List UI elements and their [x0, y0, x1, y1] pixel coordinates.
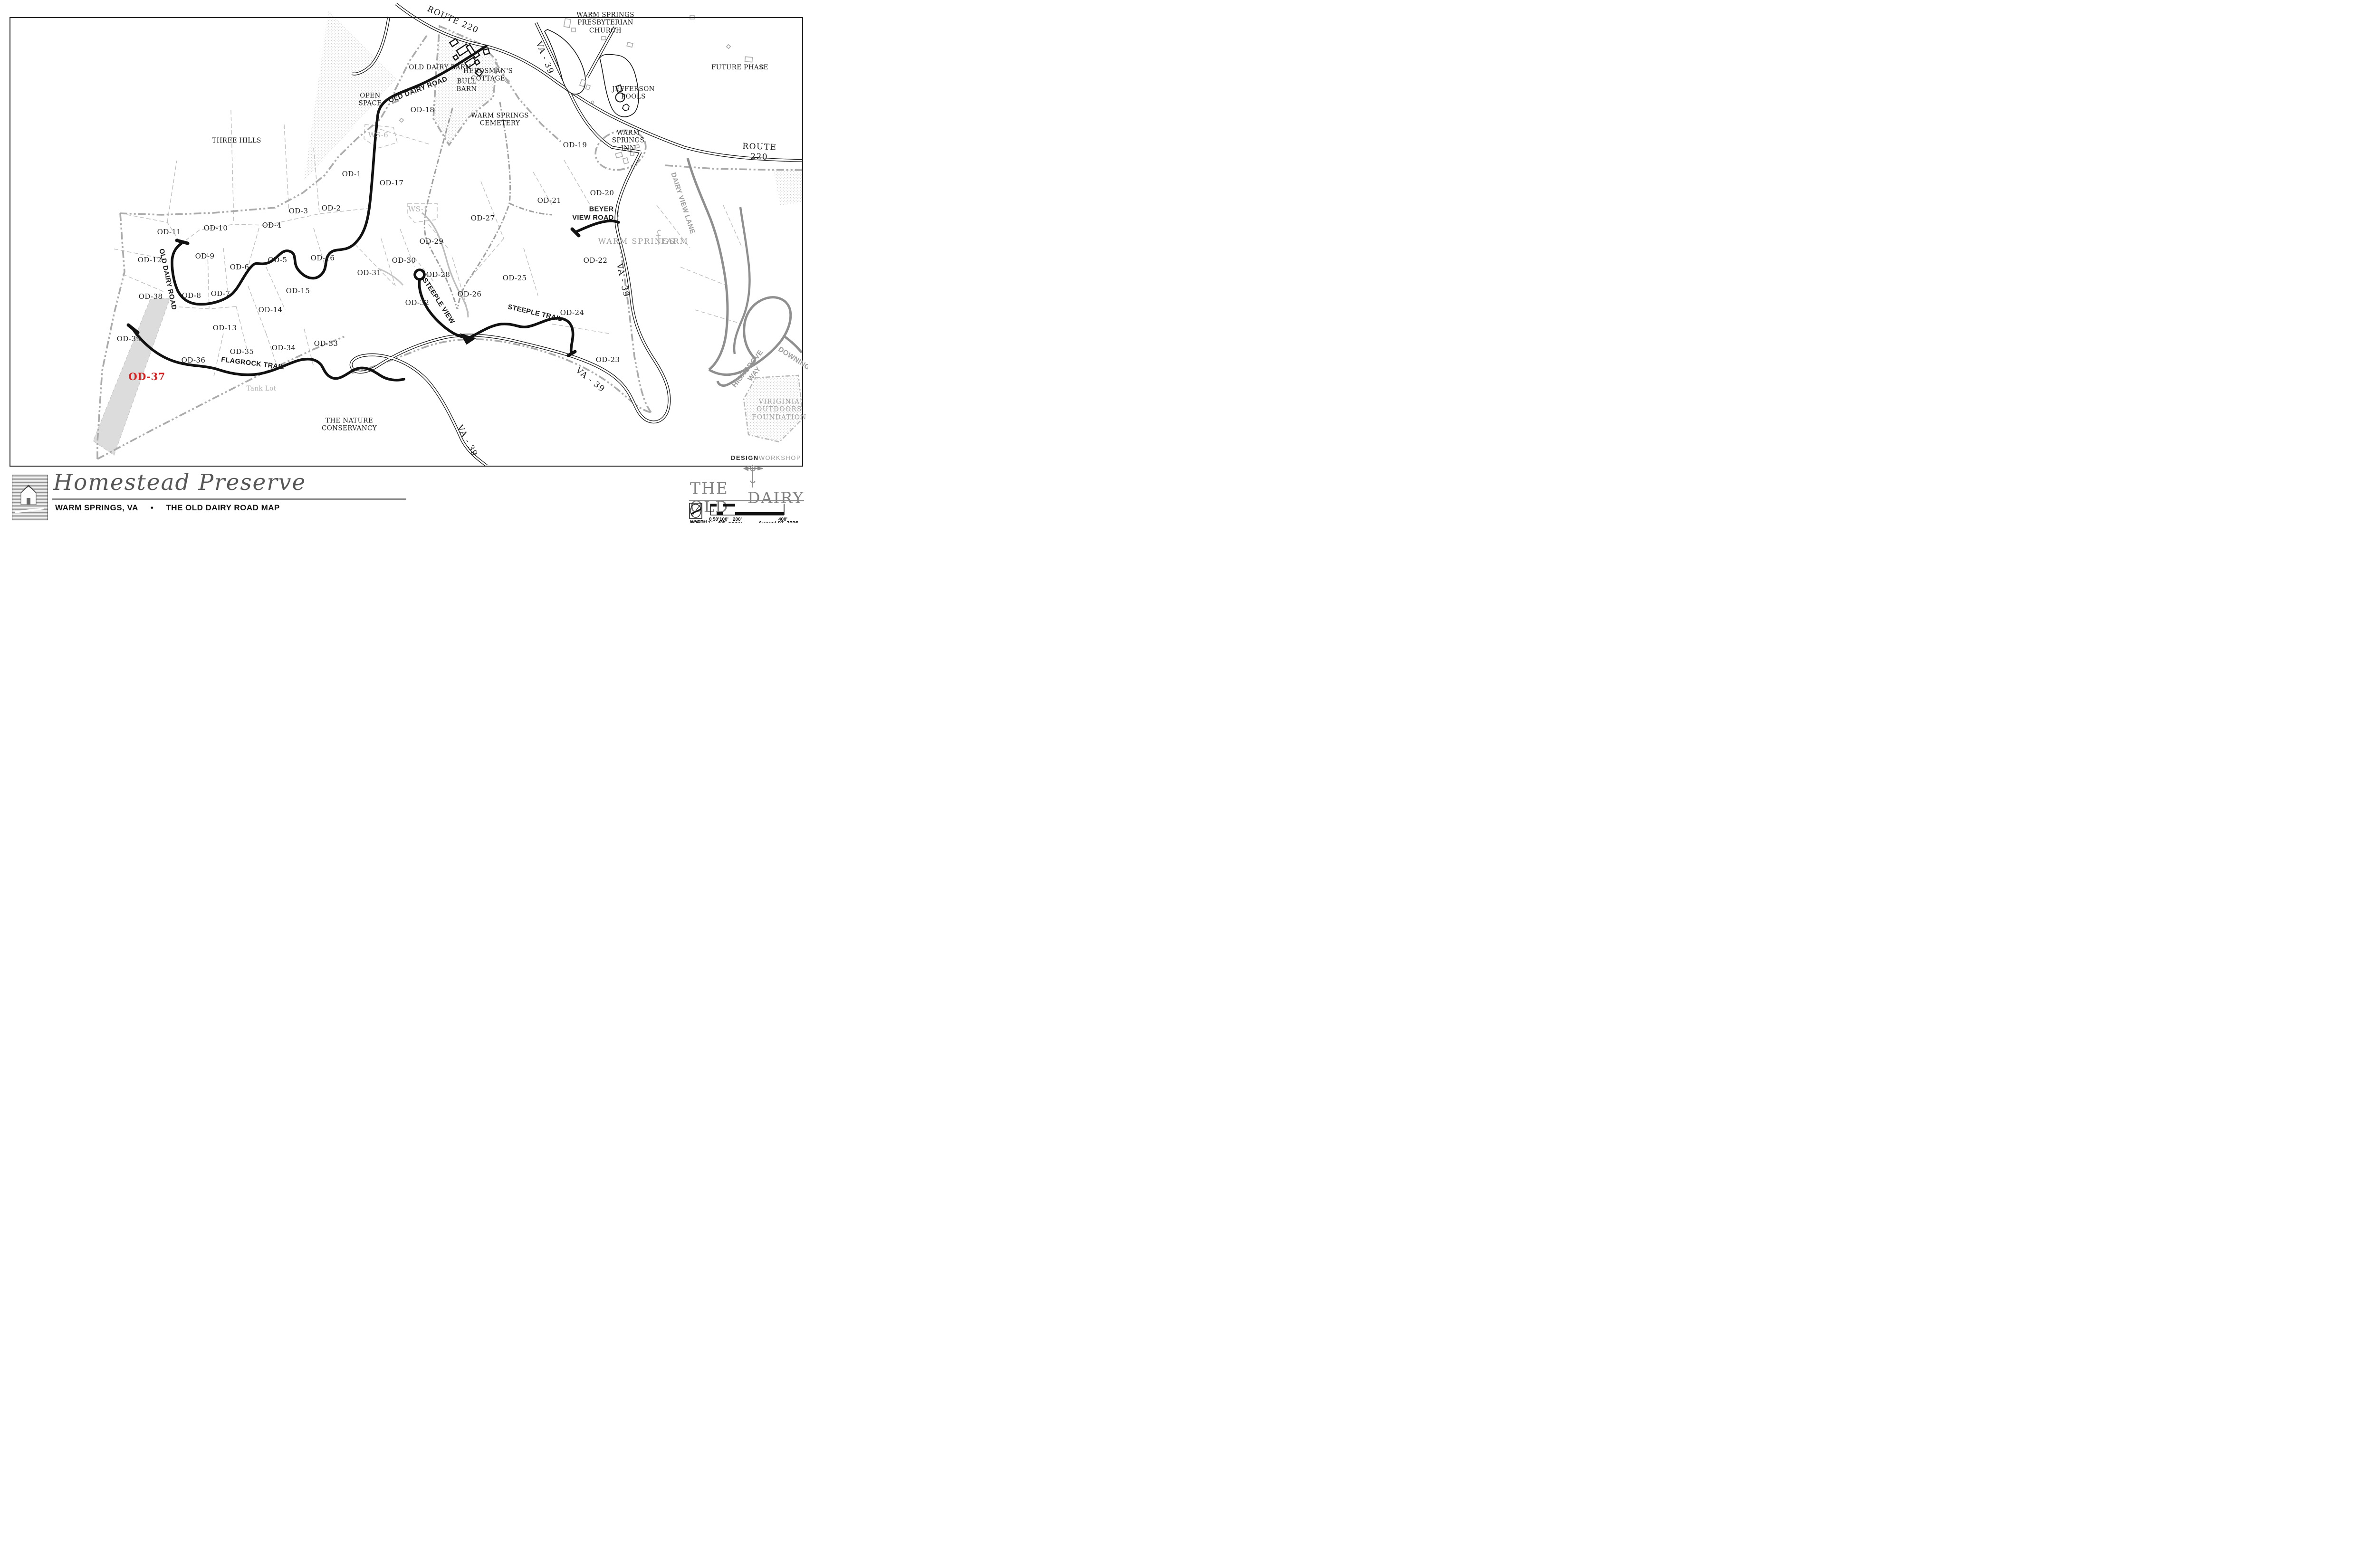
title-rule-right — [689, 500, 804, 501]
parcel-od-5: OD-5 — [268, 256, 287, 264]
parcel-od-32: OD-32 — [405, 298, 430, 307]
parcel-od-21: OD-21 — [537, 196, 562, 205]
scale-bar — [710, 504, 784, 515]
warm-springs-inn-label: WARM SPRINGS INN — [612, 129, 644, 152]
parcel-od-36: OD-36 — [182, 356, 206, 364]
nature-conservancy-label: THE NATURE CONSERVANCY — [322, 417, 377, 433]
design-workshop-credit: DESIGNWORKSHOP — [731, 454, 801, 462]
route-220-label-east: ROUTE 220 — [735, 141, 784, 163]
warm-springs-cemetery-label: WARM SPRINGS CEMETERY — [471, 112, 529, 128]
parcel-od-13: OD-13 — [213, 324, 237, 332]
parcel-od-27: OD-27 — [471, 214, 495, 222]
parcel-od-24: OD-24 — [560, 308, 584, 317]
parcel-od-37: OD-37 — [128, 371, 165, 383]
parcel-od-9: OD-9 — [195, 252, 215, 260]
future-phase-label: FUTURE PHASE — [711, 64, 768, 71]
credit-light: WORKSHOP — [759, 454, 801, 461]
parcel-od-2: OD-2 — [322, 204, 341, 212]
legend-graphics — [689, 503, 805, 522]
project-title: Homestead Preserve — [53, 469, 306, 496]
three-hills-label: THREE HILLS — [212, 137, 261, 144]
parcel-od-15: OD-15 — [286, 287, 310, 295]
old-dairy-road-map-page: ROUTE 220 ROUTE 220 VA - 39 VA - 39 VA -… — [0, 0, 808, 523]
jefferson-pools-label: JEFFERSON POOLS — [612, 86, 655, 101]
parcel-od-39: OD-39 — [117, 335, 141, 343]
old-dairy-barn-label: OLD DAIRY BARN — [409, 64, 471, 71]
parcel-od-10: OD-10 — [204, 224, 228, 232]
bull-barn-label: BULL BARN — [456, 78, 477, 94]
parcel-od-31: OD-31 — [357, 268, 382, 277]
parcel-od-20: OD-20 — [590, 189, 614, 197]
parcel-od-30: OD-30 — [392, 256, 416, 265]
subtitle-row: WARM SPRINGS, VA•THE OLD DAIRY ROAD MAP — [55, 503, 280, 513]
parcel-od-23: OD-23 — [596, 355, 620, 364]
parcel-od-17: OD-17 — [380, 179, 404, 187]
beyer-view-road-label: BEYER VIEW ROAD — [572, 205, 613, 222]
parcel-od-7: OD-7 — [211, 289, 230, 298]
parcel-ws-6: WS-6 — [368, 131, 388, 139]
map-name-label: THE OLD DAIRY ROAD MAP — [166, 503, 280, 512]
north-compass-icon — [690, 503, 702, 518]
parcel-od-18: OD-18 — [411, 105, 435, 114]
credit-bold: DESIGN — [731, 454, 759, 461]
etching-vignette — [12, 475, 48, 520]
title-rule-left — [52, 498, 406, 500]
parcel-od-19: OD-19 — [563, 141, 587, 149]
parcel-od-28: OD-28 — [426, 270, 450, 279]
tank-lot-label: Tank Lot — [247, 385, 277, 392]
parcel-od-33: OD-33 — [314, 339, 338, 348]
location-label: WARM SPRINGS, VA — [55, 503, 138, 512]
parcel-od-6: OD-6 — [230, 263, 249, 271]
parcel-od-1: OD-1 — [342, 170, 362, 178]
parcel-od-35: OD-35 — [230, 347, 254, 356]
parcel-od-25: OD-25 — [503, 274, 527, 282]
parcel-od-14: OD-14 — [259, 306, 283, 314]
parcel-od-34: OD-34 — [272, 344, 296, 352]
scale-label: SCALE: 1" = 400' approx. — [690, 520, 744, 523]
outdoors-foundation-label: VIRIGINIA OUTDOORS FOUNDATION — [752, 398, 807, 421]
parcel-od-29: OD-29 — [420, 237, 444, 246]
parcel-od-11: OD-11 — [157, 228, 182, 236]
separator-dot: • — [151, 503, 153, 512]
presbyterian-church-label: WARM SPRINGS PRESBYTERIAN CHURCH — [576, 11, 634, 34]
parcel-od-12: OD-12 — [138, 256, 162, 264]
parcel-od-3: OD-3 — [289, 207, 308, 215]
parcel-od-16: OD-16 — [311, 254, 335, 262]
parcel-od-4: OD-4 — [262, 221, 282, 229]
parcel-od-22: OD-22 — [584, 256, 608, 265]
etching-house — [12, 475, 47, 519]
map-date: August 07, 2006 — [758, 520, 798, 523]
parcel-od-26: OD-26 — [458, 290, 482, 298]
parcel-od-38: OD-38 — [139, 292, 163, 301]
warm-springs-farm-label-right: FARM — [661, 237, 689, 246]
open-space-label: OPEN SPACE — [358, 92, 382, 108]
parcel-od-8: OD-8 — [182, 291, 201, 300]
parcel-ws-1: WS-1 — [408, 205, 428, 213]
